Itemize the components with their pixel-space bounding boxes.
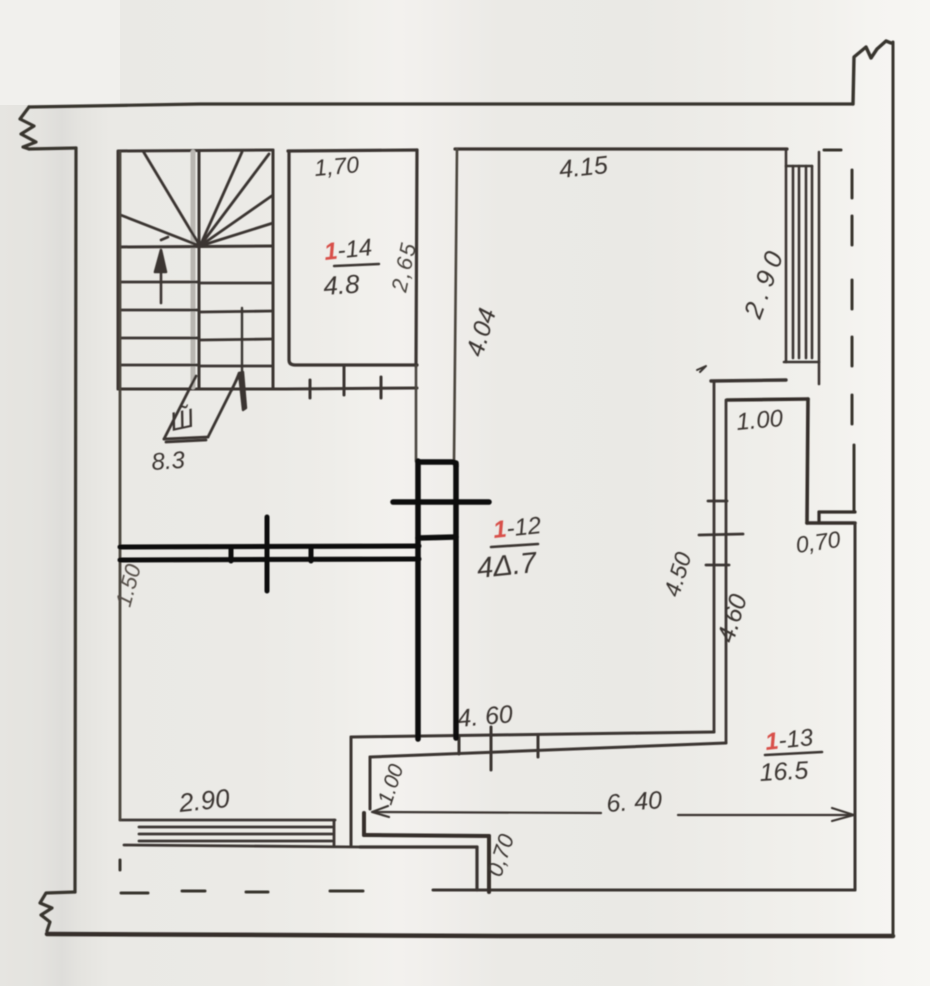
svg-text:2.90: 2.90: [176, 783, 231, 818]
svg-text:Ш̃: Ш̃: [167, 403, 197, 437]
svg-text:1-13: 1-13: [764, 724, 815, 756]
svg-text:4. 60: 4. 60: [456, 700, 514, 733]
svg-text:4.50: 4.50: [659, 549, 697, 600]
svg-text:4Δ.7: 4Δ.7: [475, 547, 540, 585]
svg-text:1.00: 1.00: [374, 761, 409, 807]
svg-text:1.00: 1.00: [735, 405, 785, 436]
svg-text:4.04: 4.04: [461, 305, 502, 360]
svg-text:0,70: 0,70: [794, 526, 842, 558]
svg-text:1.50: 1.50: [111, 561, 146, 610]
svg-text:6. 40: 6. 40: [605, 786, 663, 818]
svg-text:1-14: 1-14: [323, 234, 374, 266]
svg-text:8.3: 8.3: [151, 447, 187, 476]
svg-text:4.8: 4.8: [322, 268, 361, 300]
svg-text:16.5: 16.5: [759, 756, 809, 787]
svg-text:1,70: 1,70: [313, 151, 360, 181]
svg-text:2.90: 2.90: [737, 242, 791, 323]
svg-text:4.15: 4.15: [558, 151, 609, 184]
svg-text:1-12: 1-12: [492, 512, 543, 544]
svg-text:4.60: 4.60: [712, 591, 753, 646]
